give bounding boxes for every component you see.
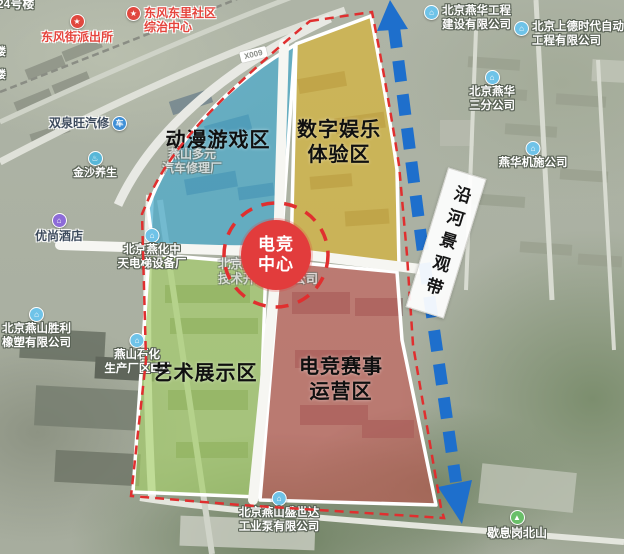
zone-anime-gaming-label: 动漫游戏区 — [166, 129, 271, 154]
poi-yanhua-engineering-text: 北京燕华工程建设有限公司 — [442, 5, 511, 32]
poi-yanshan-shengshida-pump[interactable]: ⌂北京燕山盛世达工业泵有限公司 — [239, 491, 320, 534]
poi-youshang-hotel-text: 优尚酒店 — [35, 229, 83, 243]
company-icon: ⌂ — [29, 307, 44, 322]
poi-jinsha-health-text: 金沙养生 — [73, 167, 117, 180]
poi-xiexigang-north-hill[interactable]: ▲歇息岗北山 — [487, 510, 547, 540]
poi-shuangquanwang-auto-repair[interactable]: 车双泉旺汽修 — [49, 116, 127, 131]
label-partial-building-2[interactable]: 楼 — [0, 69, 6, 82]
poi-layer: 24号楼楼楼★东风街派出所★东风东里社区综治中心车双泉旺汽修♨金沙养生⌂优尚酒店… — [0, 0, 624, 554]
poi-yanshan-shengli-rubber[interactable]: ⌂北京燕山胜利橡塑有限公司 — [2, 307, 71, 350]
label-building-24-text: 24号楼 — [0, 0, 34, 11]
poi-yanhua-third-branch[interactable]: ⌂北京燕华三分公司 — [469, 70, 515, 113]
poi-yanhua-zhongtian-equipment[interactable]: ⌂北京燕化中天电梯设备厂 — [118, 228, 187, 271]
planning-map: 24号楼楼楼★东风街派出所★东风东里社区综治中心车双泉旺汽修♨金沙养生⌂优尚酒店… — [0, 0, 624, 554]
esports-center-hub: 电竞 中心 — [241, 220, 311, 290]
poi-yanshan-shengshida-pump-text: 北京燕山盛世达工业泵有限公司 — [239, 507, 320, 534]
poi-youshang-hotel[interactable]: ⌂优尚酒店 — [35, 213, 83, 243]
poi-shuangquanwang-auto-repair-text: 双泉旺汽修 — [49, 116, 109, 130]
company-icon: ⌂ — [129, 333, 144, 348]
company-icon: ⌂ — [424, 5, 439, 20]
zone-art-exhibition-label: 艺术展示区 — [153, 362, 258, 387]
poi-dongfeng-dongli-community-center-text: 东风东里社区综治中心 — [144, 6, 216, 34]
hub-label-line1: 电竞 — [258, 235, 294, 255]
poi-shangde-automation-text: 北京上德时代自动化工程有限公司 — [532, 21, 624, 48]
poi-dongfeng-dongli-community-center[interactable]: ★东风东里社区综治中心 — [126, 6, 216, 34]
poi-yanhua-engineering[interactable]: ⌂北京燕华工程建设有限公司 — [424, 5, 511, 32]
company-icon: ⌂ — [485, 70, 500, 85]
poi-shangde-automation[interactable]: ⌂北京上德时代自动化工程有限公司 — [514, 21, 624, 48]
company-icon: ⌂ — [145, 228, 160, 243]
poi-xiexigang-north-hill-text: 歇息岗北山 — [487, 526, 547, 540]
hub-label-line2: 中心 — [258, 255, 294, 275]
company-icon: ⌂ — [272, 491, 287, 506]
zone-digital-entertainment-label: 数字娱乐体验区 — [297, 118, 381, 168]
poi-dongfeng-police-station[interactable]: ★东风街派出所 — [41, 14, 113, 44]
poi-jinsha-health[interactable]: ♨金沙养生 — [73, 151, 117, 180]
poi-yanhua-jishi-company[interactable]: ⌂燕华机施公司 — [499, 141, 568, 171]
label-building-24[interactable]: 24号楼 — [0, 0, 34, 11]
hotel-bed-icon: ⌂ — [51, 213, 66, 228]
poi-yanshan-shengli-rubber-text: 北京燕山胜利橡塑有限公司 — [2, 323, 71, 350]
police-badge-icon: ★ — [69, 14, 84, 29]
poi-dongfeng-police-station-text: 东风街派出所 — [41, 30, 113, 44]
company-icon: ⌂ — [514, 21, 529, 36]
poi-yanhua-third-branch-text: 北京燕华三分公司 — [469, 86, 515, 113]
zone-esports-events-label: 电竞赛事运营区 — [299, 355, 383, 405]
star-icon: ★ — [126, 6, 141, 21]
label-partial-building-1[interactable]: 楼 — [0, 46, 6, 59]
mountain-icon: ▲ — [509, 510, 524, 525]
poi-yanhua-jishi-company-text: 燕华机施公司 — [499, 157, 568, 171]
company-icon: ⌂ — [526, 141, 541, 156]
spa-icon: ♨ — [88, 151, 103, 166]
label-partial-building-1-text: 楼 — [0, 46, 6, 59]
label-partial-building-2-text: 楼 — [0, 69, 6, 82]
poi-yanhua-zhongtian-equipment-text: 北京燕化中天电梯设备厂 — [118, 244, 187, 271]
car-icon: 车 — [112, 116, 127, 131]
